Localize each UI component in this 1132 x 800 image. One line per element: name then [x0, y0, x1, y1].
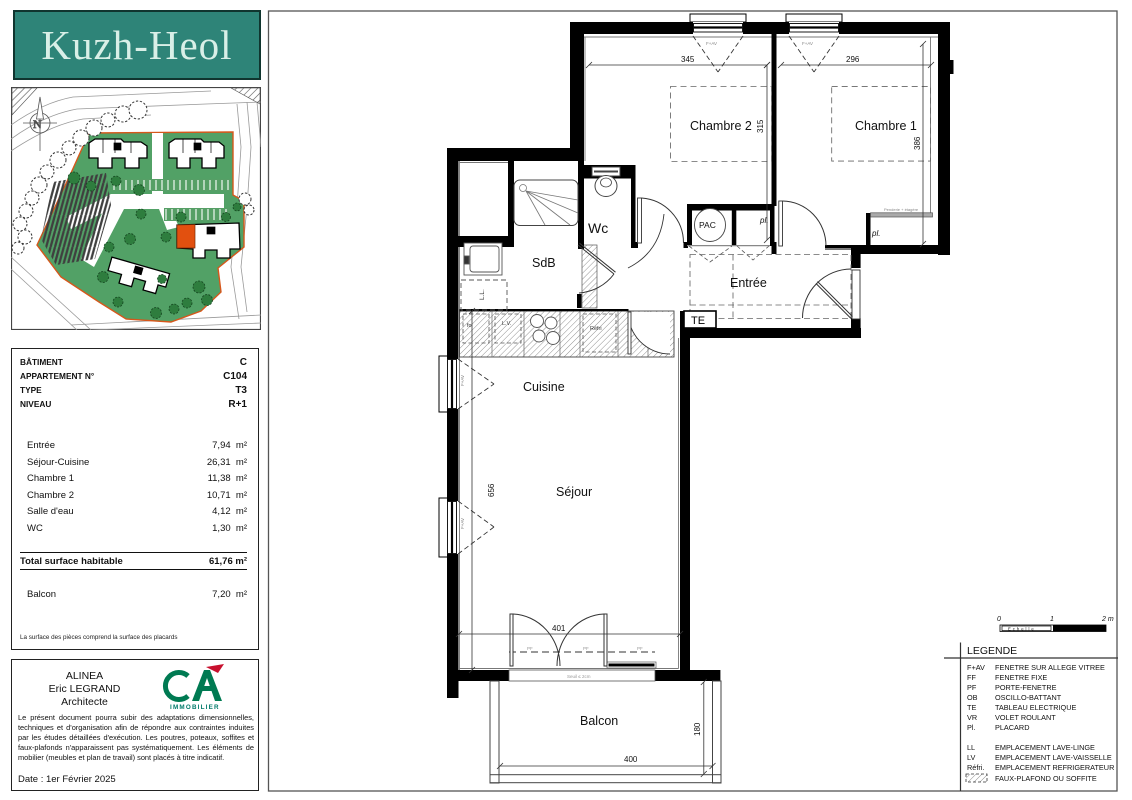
svg-text:0: 0 — [997, 616, 1001, 623]
svg-text:PF: PF — [583, 646, 589, 651]
svg-text:pl.: pl. — [871, 229, 880, 238]
svg-text:656: 656 — [487, 483, 496, 497]
svg-text:EMPLACEMENT REFRIGERATEUR: EMPLACEMENT REFRIGERATEUR — [995, 763, 1114, 772]
svg-text:296: 296 — [846, 55, 860, 64]
svg-text:LL: LL — [967, 743, 975, 752]
svg-text:pl.: pl. — [759, 216, 768, 225]
svg-text:LEGENDE: LEGENDE — [967, 645, 1017, 657]
svg-text:PLACARD: PLACARD — [995, 723, 1029, 732]
svg-text:OSCILLO-BATTANT: OSCILLO-BATTANT — [995, 693, 1062, 702]
svg-text:180: 180 — [693, 722, 702, 736]
svg-text:L.V.: L.V. — [502, 321, 512, 327]
svg-text:TE: TE — [691, 315, 705, 327]
svg-text:F+AV: F+AV — [967, 663, 985, 672]
svg-text:F+AV: F+AV — [706, 41, 717, 46]
svg-text:PF: PF — [637, 646, 643, 651]
svg-text:FENETRE SUR ALLEGE VITREE: FENETRE SUR ALLEGE VITREE — [995, 663, 1105, 672]
svg-text:401: 401 — [552, 624, 566, 633]
svg-text:EMPLACEMENT LAVE-LINGE: EMPLACEMENT LAVE-LINGE — [995, 743, 1095, 752]
svg-text:Entrée: Entrée — [730, 276, 767, 290]
svg-text:VOLET ROULANT: VOLET ROULANT — [995, 713, 1056, 722]
svg-text:LV: LV — [967, 753, 976, 762]
svg-text:Wc: Wc — [588, 220, 608, 236]
svg-text:OB: OB — [967, 693, 978, 702]
svg-text:Réfri: Réfri — [590, 326, 602, 332]
svg-text:F+AV: F+AV — [460, 375, 465, 386]
svg-text:Echelle: Echelle — [1008, 626, 1036, 631]
svg-text:PF: PF — [967, 683, 977, 692]
svg-text:315: 315 — [756, 119, 765, 133]
svg-text:Pl.: Pl. — [967, 723, 976, 732]
svg-text:TE: TE — [967, 703, 976, 712]
svg-text:FF: FF — [967, 673, 976, 682]
svg-text:386: 386 — [913, 136, 922, 150]
svg-text:Penderie + étagère: Penderie + étagère — [884, 207, 919, 212]
svg-text:fo: fo — [467, 323, 472, 329]
svg-text:2 m: 2 m — [1101, 616, 1114, 623]
svg-text:345: 345 — [681, 55, 695, 64]
svg-text:1: 1 — [1050, 616, 1054, 623]
svg-text:PF: PF — [527, 646, 533, 651]
svg-text:Réfri.: Réfri. — [967, 763, 984, 772]
svg-text:Séjour: Séjour — [556, 485, 592, 499]
svg-text:L.L.: L.L. — [479, 289, 486, 300]
svg-text:FAUX-PLAFOND OU SOFFITE: FAUX-PLAFOND OU SOFFITE — [995, 774, 1097, 783]
svg-text:F+AV: F+AV — [460, 518, 465, 529]
svg-text:Chambre 1: Chambre 1 — [855, 119, 917, 133]
svg-text:VR: VR — [967, 713, 977, 722]
svg-text:Cuisine: Cuisine — [523, 380, 565, 394]
svg-text:FENETRE FIXE: FENETRE FIXE — [995, 673, 1047, 682]
svg-text:Balcon: Balcon — [580, 714, 618, 728]
svg-text:F+AV: F+AV — [802, 41, 813, 46]
svg-text:400: 400 — [624, 755, 638, 764]
svg-text:TABLEAU ELECTRIQUE: TABLEAU ELECTRIQUE — [995, 703, 1076, 712]
svg-text:EMPLACEMENT LAVE-VAISSELLE: EMPLACEMENT LAVE-VAISSELLE — [995, 753, 1112, 762]
svg-text:PORTE-FENETRE: PORTE-FENETRE — [995, 683, 1057, 692]
svg-text:SdB: SdB — [532, 256, 556, 270]
svg-text:PAC: PAC — [699, 220, 716, 230]
svg-text:Chambre 2: Chambre 2 — [690, 119, 752, 133]
svg-text:Seuil ≤ 2cm: Seuil ≤ 2cm — [567, 674, 591, 679]
